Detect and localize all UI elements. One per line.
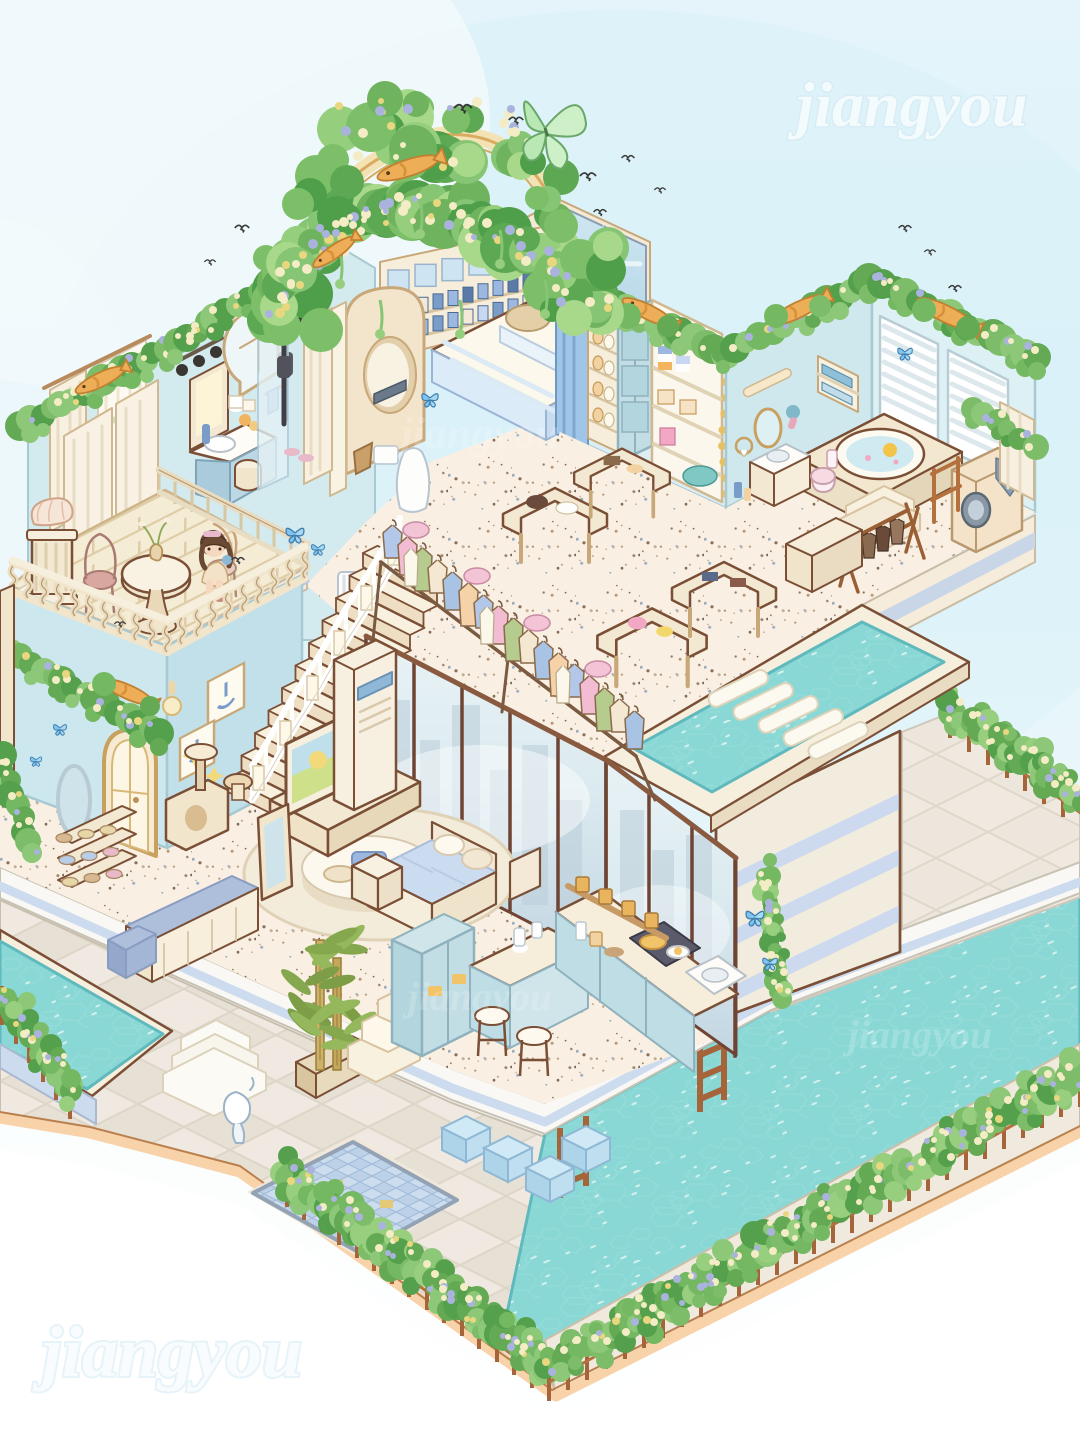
svg-text:jiangyou: jiangyou [402, 974, 552, 1019]
svg-text:jiangyou: jiangyou [395, 409, 560, 458]
svg-text:jiangyou: jiangyou [32, 1312, 302, 1392]
svg-text:jiangyou: jiangyou [787, 69, 1027, 140]
svg-text:jiangyou: jiangyou [842, 1012, 992, 1057]
